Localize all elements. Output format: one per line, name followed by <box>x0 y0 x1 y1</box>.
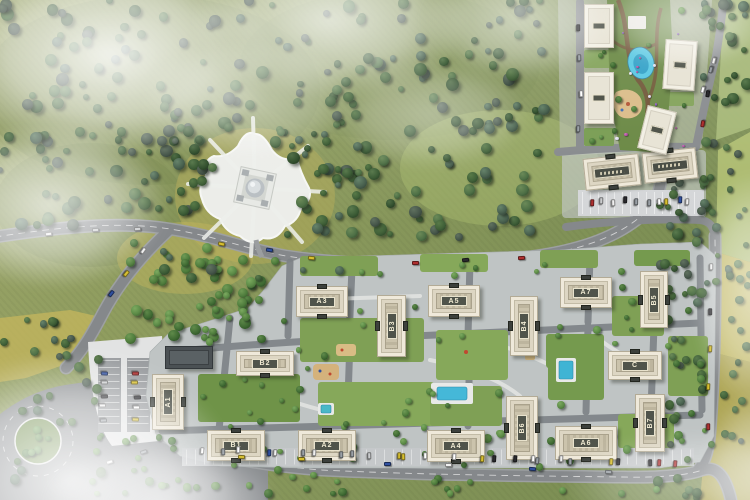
stair-core <box>322 458 332 463</box>
stair-core <box>150 397 155 407</box>
stair-core <box>581 305 591 310</box>
building-label-badge <box>593 23 606 30</box>
stair-core <box>608 184 618 190</box>
building-a3[interactable]: A3 <box>296 286 348 317</box>
building[interactable] <box>584 72 614 124</box>
building-a6[interactable]: A6 <box>555 426 617 460</box>
building-a5[interactable]: A5 <box>428 285 480 317</box>
stair-core <box>449 283 459 288</box>
stair-core <box>535 321 540 331</box>
site-plan-rendering: A3B3A5B4A7B5B2A1CB1A2A4B6A6B7 <box>0 0 750 500</box>
stair-core <box>449 314 459 319</box>
stair-core <box>630 349 640 354</box>
stair-core <box>451 428 461 433</box>
building-b7[interactable]: B7 <box>635 394 665 452</box>
building-b1[interactable]: B1 <box>207 430 265 461</box>
building-label-badge: A4 <box>443 441 469 451</box>
building-b5[interactable]: B5 <box>640 271 668 328</box>
stair-core <box>630 377 640 382</box>
building-label-badge: B2 <box>252 359 278 369</box>
stair-core <box>375 321 380 331</box>
stair-core <box>317 314 327 319</box>
building-label-badge: A3 <box>309 297 335 307</box>
stair-core <box>181 397 186 407</box>
stair-core <box>535 423 540 433</box>
building-label-badge: A2 <box>314 441 340 451</box>
building[interactable] <box>165 346 213 369</box>
building-b4[interactable]: B4 <box>510 296 538 356</box>
building-label-badge: A1 <box>163 389 173 415</box>
building[interactable] <box>584 4 614 48</box>
building-a1[interactable]: A1 <box>152 374 184 430</box>
building-label-badge: B5 <box>649 287 659 313</box>
building[interactable] <box>662 39 697 91</box>
stair-core <box>260 349 270 354</box>
building-label-badge: B4 <box>519 313 529 339</box>
stair-core <box>403 321 408 331</box>
building-a2[interactable]: A2 <box>298 430 356 461</box>
building-b3[interactable]: B3 <box>377 295 406 357</box>
stair-core <box>581 424 591 429</box>
stair-core <box>666 177 676 183</box>
stair-core <box>451 459 461 464</box>
building-label-badge: A5 <box>441 296 467 306</box>
building-label-badge: C <box>622 361 648 371</box>
building[interactable] <box>582 153 641 191</box>
building-label-badge <box>673 61 686 69</box>
building-b6[interactable]: B6 <box>506 396 538 460</box>
buildings-layer: A3B3A5B4A7B5B2A1CB1A2A4B6A6B7 <box>0 0 750 500</box>
stair-core <box>322 428 332 433</box>
stair-core <box>317 284 327 289</box>
stair-core <box>638 295 643 305</box>
building-label-badge <box>593 95 606 102</box>
stair-core <box>605 154 615 160</box>
stair-core <box>662 418 667 428</box>
stair-core <box>633 418 638 428</box>
building-c[interactable]: C <box>608 351 662 380</box>
building-label-badge: B6 <box>517 415 527 441</box>
stair-core <box>231 428 241 433</box>
stair-core <box>504 423 509 433</box>
stair-core <box>231 458 241 463</box>
stair-core <box>665 295 670 305</box>
stair-core <box>508 321 513 331</box>
building-label-badge: B3 <box>387 313 397 339</box>
building-a4[interactable]: A4 <box>427 430 485 462</box>
building-label-badge: A7 <box>573 288 599 298</box>
building-roof <box>169 350 209 365</box>
building-b2[interactable]: B2 <box>236 351 294 376</box>
stair-core <box>260 373 270 378</box>
stair-core <box>581 457 591 462</box>
building-label-badge: B7 <box>645 410 655 436</box>
building-label-badge: B1 <box>223 441 249 451</box>
building[interactable] <box>642 147 699 183</box>
stair-core <box>581 275 591 280</box>
building-a7[interactable]: A7 <box>560 277 612 308</box>
building-label-badge: A6 <box>573 438 599 448</box>
